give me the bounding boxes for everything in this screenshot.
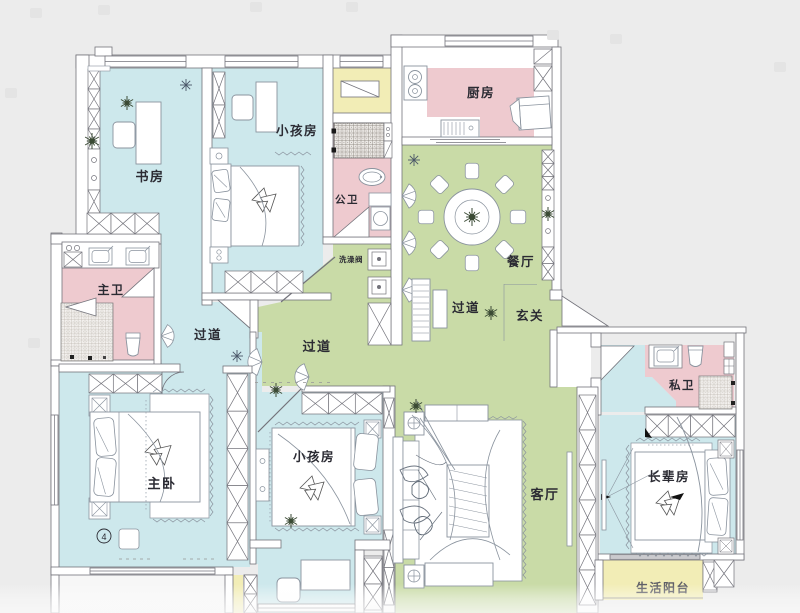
svg-text:4: 4 [101, 532, 106, 542]
svg-text:过道: 过道 [194, 327, 222, 342]
svg-text:长辈房: 长辈房 [648, 469, 690, 484]
svg-text:过道: 过道 [302, 339, 331, 354]
svg-text:餐厅: 餐厅 [506, 254, 535, 269]
svg-text:小孩房: 小孩房 [275, 123, 318, 138]
svg-text:主卫: 主卫 [97, 282, 124, 297]
svg-text:小孩房: 小孩房 [292, 449, 335, 464]
svg-text:客厅: 客厅 [530, 487, 559, 502]
svg-text:厨房: 厨房 [467, 85, 495, 100]
svg-text:私卫: 私卫 [669, 378, 695, 392]
svg-text:主卧: 主卧 [147, 476, 176, 491]
svg-text:洗澡阀: 洗澡阀 [339, 254, 363, 264]
svg-text:书房: 书房 [135, 169, 164, 184]
svg-text:玄关: 玄关 [516, 308, 544, 323]
svg-text:公卫: 公卫 [335, 194, 359, 206]
svg-text:过道: 过道 [452, 300, 480, 315]
